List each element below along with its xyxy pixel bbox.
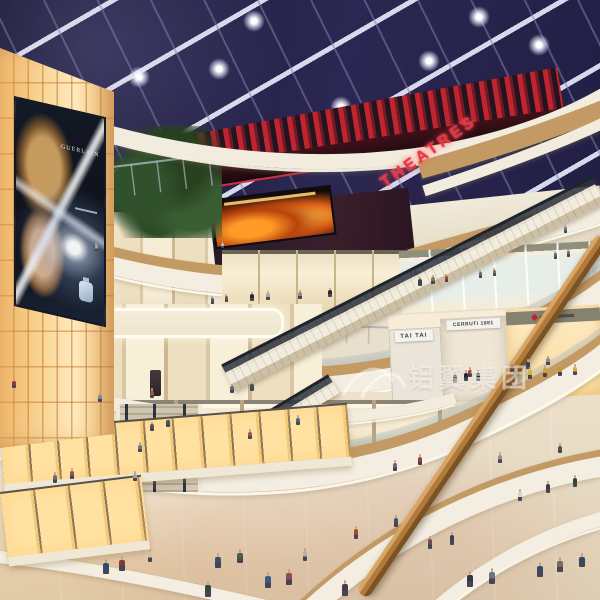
person	[303, 548, 308, 561]
person	[558, 443, 562, 453]
person	[546, 481, 550, 493]
person	[354, 526, 359, 539]
watermark-text: 铝翼集团	[408, 358, 532, 395]
person	[328, 288, 331, 297]
person	[12, 378, 16, 388]
person	[221, 241, 224, 248]
person	[394, 515, 398, 527]
person	[138, 442, 142, 452]
person	[70, 468, 74, 479]
person	[557, 557, 562, 572]
person	[564, 225, 567, 233]
person	[489, 568, 495, 584]
person	[237, 549, 242, 563]
person	[150, 388, 154, 398]
person	[148, 549, 153, 562]
person	[150, 422, 153, 431]
person	[537, 562, 542, 577]
person	[567, 249, 570, 257]
person	[133, 471, 137, 481]
person	[428, 536, 433, 549]
person	[393, 460, 397, 471]
person	[248, 429, 252, 439]
person	[230, 384, 233, 393]
person	[286, 569, 292, 585]
person	[554, 251, 557, 259]
person	[265, 572, 271, 588]
mall-atrium-rendering: THEATRES TAI TAI TAI TAI CERRUTI 1881	[0, 0, 600, 600]
person	[119, 556, 124, 571]
shoppers-layer	[0, 0, 600, 600]
person	[342, 580, 348, 596]
person	[431, 275, 434, 284]
person	[493, 268, 496, 276]
person	[445, 274, 448, 282]
person	[296, 415, 300, 425]
person	[215, 553, 220, 568]
watermark-logo-swoosh	[336, 352, 408, 400]
person	[53, 472, 57, 483]
person	[573, 475, 577, 487]
person	[418, 454, 422, 465]
person	[103, 559, 108, 574]
person	[579, 553, 584, 567]
person	[225, 294, 228, 302]
person	[479, 270, 482, 278]
person	[450, 532, 455, 545]
person	[98, 392, 102, 402]
person	[95, 243, 98, 251]
watermark: 铝翼集团	[336, 350, 596, 402]
person	[205, 581, 211, 597]
person	[266, 291, 269, 300]
person	[498, 452, 502, 463]
person	[418, 277, 421, 286]
person	[298, 290, 301, 299]
person	[518, 489, 522, 501]
person	[467, 571, 473, 587]
person	[250, 292, 253, 301]
person	[250, 382, 253, 391]
person	[166, 418, 169, 427]
person	[211, 296, 214, 304]
